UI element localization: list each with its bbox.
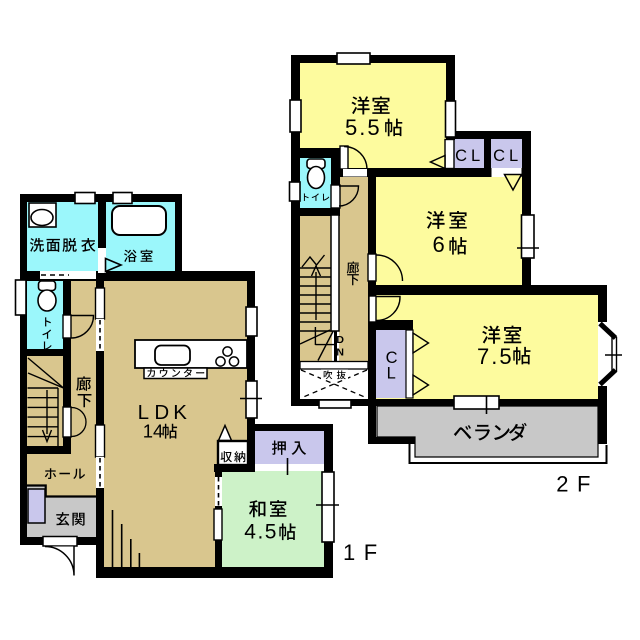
svg-text:K: K [173,401,187,424]
svg-text:4.5: 4.5 [244,520,278,543]
svg-text:F: F [364,540,377,565]
svg-text:L: L [387,365,396,383]
svg-text:2: 2 [556,472,568,497]
svg-text:C: C [493,147,505,165]
svg-text:7.5: 7.5 [477,344,514,369]
svg-text:14: 14 [143,421,164,442]
svg-text:L: L [471,147,480,165]
svg-text:D: D [336,334,344,346]
svg-text:C: C [455,147,467,165]
svg-text:L: L [509,147,518,165]
svg-text:N: N [336,347,344,359]
svg-text:5.5: 5.5 [345,115,382,140]
svg-text:1: 1 [343,540,355,565]
svg-text:F: F [577,472,590,497]
svg-text:6: 6 [433,232,445,257]
